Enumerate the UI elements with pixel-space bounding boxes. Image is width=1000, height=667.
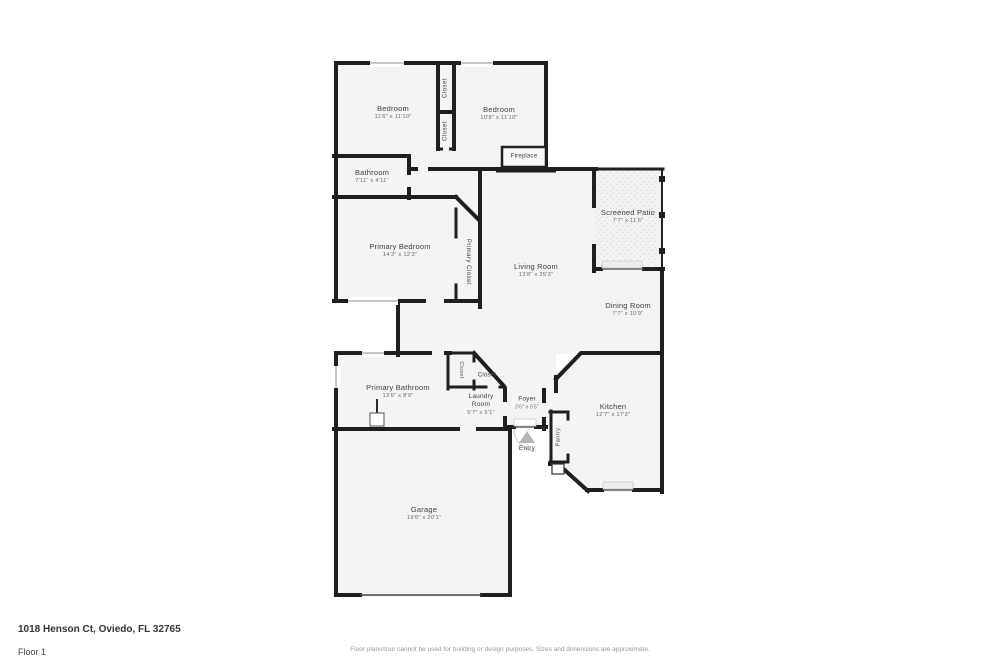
- room-dims: 12'7" x 17'3": [596, 413, 630, 420]
- room-name: Bedroom: [480, 105, 517, 114]
- room-label-kitchen: Kitchen 12'7" x 17'3": [596, 402, 630, 420]
- room-label-bedroom-2: Bedroom 10'8" x 11'10": [480, 105, 517, 123]
- room-label-closet-lower: Closet: [442, 121, 450, 141]
- room-name: Closet: [478, 372, 496, 380]
- room-label-primary-bedroom: Primary Bedroom 14'3" x 12'3": [369, 242, 430, 260]
- room-dims: 14'3" x 12'3": [369, 253, 430, 260]
- room-label-screened-patio: Screened Patio 7'7" x 11'6": [601, 208, 655, 226]
- room-dims: 7'7" x 10'9": [605, 312, 651, 319]
- room-label-entry-closet: Closet: [478, 372, 496, 380]
- room-dims: 19'6" x 20'1": [407, 516, 441, 523]
- room-label-entry: Entry: [519, 445, 535, 453]
- room-label-living-room: Living Room 13'8" x 25'3": [514, 262, 558, 280]
- room-name: Foyer: [515, 395, 539, 403]
- room-name: Fireplace: [511, 153, 537, 161]
- room-name: Dining Room: [605, 301, 651, 310]
- room-name: Pantry: [556, 428, 563, 447]
- room-name: Bathroom: [355, 168, 389, 177]
- room-dims: 3'6" x 5'5": [515, 404, 539, 410]
- room-name: Screened Patio: [601, 208, 655, 217]
- room-dims: 10'8" x 11'10": [480, 116, 517, 123]
- room-name: Closet: [458, 361, 464, 378]
- room-name: Laundry Room: [463, 393, 499, 409]
- room-label-laundry-room: Laundry Room 5'7" x 5'1": [463, 393, 499, 417]
- disclaimer-text: Floor plans/tour cannot be used for buil…: [0, 646, 1000, 653]
- floorplan-drawing: [0, 0, 1000, 667]
- room-dims: 7'7" x 11'6": [601, 219, 655, 226]
- room-label-pantry: Pantry: [556, 428, 563, 447]
- room-label-primary-bathroom: Primary Bathroom 13'6" x 8'9": [366, 383, 430, 401]
- room-name: Primary Closet: [463, 239, 471, 285]
- room-name: Garage: [407, 505, 441, 514]
- room-name: Bedroom: [375, 104, 412, 113]
- room-label-primary-closet: Primary Closet: [463, 239, 471, 285]
- room-name: Primary Bathroom: [366, 383, 430, 392]
- room-dims: 13'6" x 8'9": [366, 394, 430, 401]
- room-dims: 7'11" x 4'11": [355, 179, 389, 186]
- room-label-fireplace: Fireplace: [511, 153, 537, 161]
- room-label-hall-closet: Closet: [458, 361, 464, 378]
- room-dims: 5'7" x 5'1": [463, 410, 499, 417]
- room-name: Entry: [519, 445, 535, 453]
- room-label-bedroom-1: Bedroom 11'6" x 11'10": [375, 104, 412, 122]
- room-label-bathroom: Bathroom 7'11" x 4'11": [355, 168, 389, 186]
- room-dims: 13'8" x 25'3": [514, 273, 558, 280]
- room-name: Primary Bedroom: [369, 242, 430, 251]
- room-label-garage: Garage 19'6" x 20'1": [407, 505, 441, 523]
- room-label-dining-room: Dining Room 7'7" x 10'9": [605, 301, 651, 319]
- room-dims: 11'6" x 11'10": [375, 115, 412, 122]
- room-label-foyer: Foyer 3'6" x 5'5": [515, 395, 539, 410]
- room-name: Closet: [442, 121, 450, 141]
- room-label-closet-upper: Closet: [442, 78, 450, 98]
- room-name: Living Room: [514, 262, 558, 271]
- room-name: Closet: [442, 78, 450, 98]
- entry-arrow-icon: [519, 431, 535, 443]
- room-fills: [334, 62, 663, 597]
- room-name: Kitchen: [596, 402, 630, 411]
- property-address: 1018 Henson Ct, Oviedo, FL 32765: [18, 624, 181, 635]
- floor-plan-page: Bedroom 11'6" x 11'10" Bedroom 10'8" x 1…: [0, 0, 1000, 667]
